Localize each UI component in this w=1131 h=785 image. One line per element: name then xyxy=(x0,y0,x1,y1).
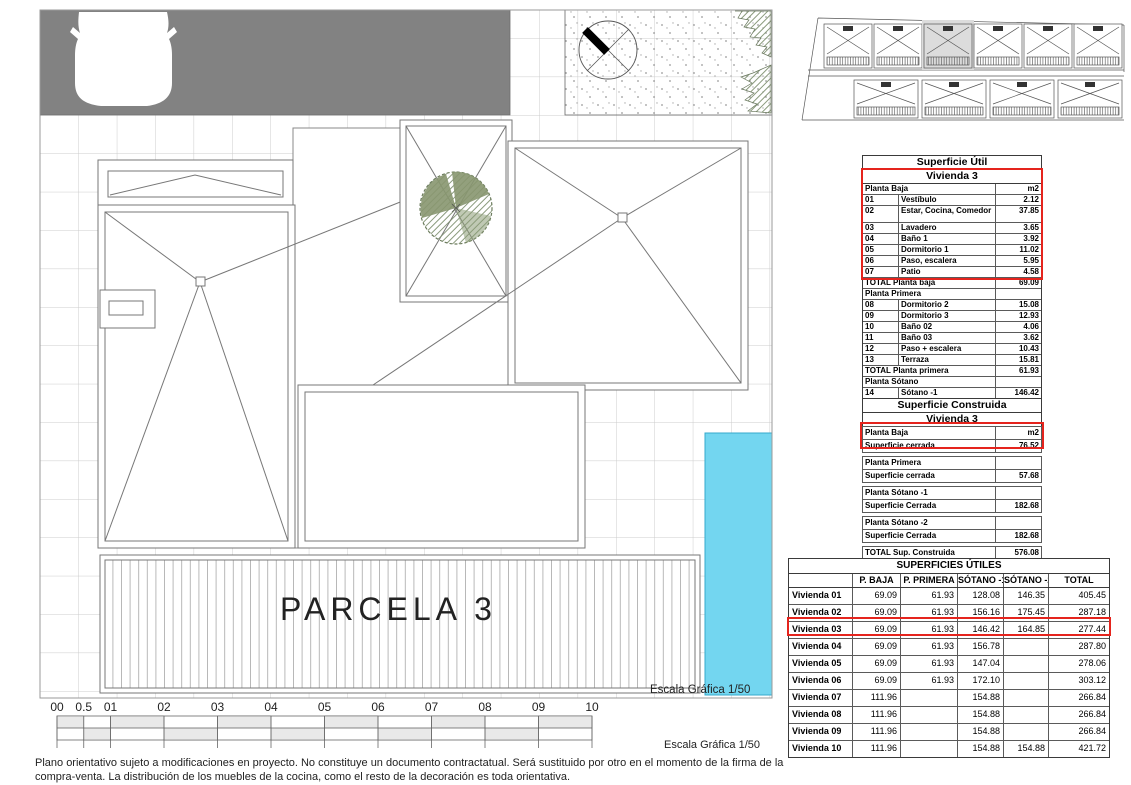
table-row: 08Dormitorio 215.08 xyxy=(863,300,1041,311)
svg-text:10: 10 xyxy=(585,700,599,714)
table-superficies-utiles: SUPERFICIES ÚTILES P. BAJAP. PRIMERASÓTA… xyxy=(788,558,1110,758)
table-row: Planta Sótano xyxy=(863,377,1041,388)
table-body: Planta Bajam2Superficie cerrada76.52Plan… xyxy=(862,426,1042,560)
table-row: 05Dormitorio 111.02 xyxy=(863,245,1041,256)
svg-text:08: 08 xyxy=(478,700,492,714)
svg-text:0.5: 0.5 xyxy=(75,700,92,714)
table-row: Superficie cerrada76.52 xyxy=(862,439,1042,453)
pool xyxy=(705,433,772,695)
table-row: Vivienda 10111.96154.88154.88421.72 xyxy=(789,741,1109,757)
table-row: Planta Primera xyxy=(862,456,1042,470)
table-row: Superficie Cerrada182.68 xyxy=(862,499,1042,513)
scale-caption-outer: Escala Gráfica 1/50 xyxy=(664,739,760,751)
key-plan-thumbnail xyxy=(798,12,1128,124)
table-column-headers: P. BAJAP. PRIMERASÓTANO -1SÓTANO -2TOTAL xyxy=(789,574,1109,588)
table-row: Planta Sótano -1 xyxy=(862,486,1042,500)
svg-text:00: 00 xyxy=(50,700,64,714)
car-icon xyxy=(70,12,177,106)
deck: PARCELA 3 xyxy=(100,555,700,693)
table-row: Planta Primera xyxy=(863,289,1041,300)
table-row: Vivienda 0669.0961.93172.10303.12 xyxy=(789,673,1109,690)
table-row: Planta Sótano -2 xyxy=(862,516,1042,530)
svg-text:05: 05 xyxy=(318,700,332,714)
table-row: 03Lavadero3.65 xyxy=(863,223,1041,234)
table-row: Vivienda 0469.0961.93156.78287.80 xyxy=(789,639,1109,656)
graphic-scale-bar: 000.501020304050607080910 xyxy=(50,700,599,748)
table-subtitle: Vivienda 3 xyxy=(863,413,1041,427)
parcel-label: PARCELA 3 xyxy=(280,591,497,627)
table-row: Superficie Cerrada182.68 xyxy=(862,529,1042,543)
table-superficie-util: Superficie Útil Vivienda 3 Planta Bajam2… xyxy=(862,155,1042,421)
table-row: 13Terraza15.81 xyxy=(863,355,1041,366)
table-row: 11Baño 033.62 xyxy=(863,333,1041,344)
svg-text:09: 09 xyxy=(532,700,546,714)
table-title: Superficie Construida xyxy=(863,399,1041,413)
gravel-area xyxy=(565,10,772,115)
table-superficie-construida: Superficie Construida Vivienda 3 Planta … xyxy=(862,398,1042,560)
svg-text:03: 03 xyxy=(211,700,225,714)
table-row: 01Vestíbulo2.12 xyxy=(863,195,1041,206)
table-header: Superficie Construida Vivienda 3 xyxy=(862,398,1042,427)
road xyxy=(40,10,510,115)
scale-caption-inner: Escala Gráfica 1/50 xyxy=(650,684,750,696)
svg-text:01: 01 xyxy=(104,700,118,714)
plan-sheet: PARCELA 3 Escala Gráfica 1/50 000.501020… xyxy=(0,0,1131,785)
svg-text:02: 02 xyxy=(157,700,171,714)
table-title: SUPERFICIES ÚTILES xyxy=(789,559,1109,574)
table-row: Vivienda 0369.0961.93146.42164.85277.44 xyxy=(789,622,1109,639)
table-row: 06Paso, escalera5.95 xyxy=(863,256,1041,267)
site-plan-drawing: PARCELA 3 Escala Gráfica 1/50 000.501020… xyxy=(35,5,775,755)
table-title: Superficie Útil xyxy=(863,156,1041,170)
svg-text:04: 04 xyxy=(264,700,278,714)
table-row: Planta Bajam2 xyxy=(862,426,1042,440)
table-row: 04Baño 13.92 xyxy=(863,234,1041,245)
table-body: Planta Bajam201Vestíbulo2.1202Estar, Coc… xyxy=(863,184,1041,420)
svg-text:07: 07 xyxy=(425,700,439,714)
table-row: 02Estar, Cocina, Comedor37.85 xyxy=(863,206,1041,223)
table-row: Vivienda 08111.96154.88266.84 xyxy=(789,707,1109,724)
table-row: Vivienda 09111.96154.88266.84 xyxy=(789,724,1109,741)
table-subtitle: Vivienda 3 xyxy=(863,170,1041,184)
table-row: TOTAL Planta primera61.93 xyxy=(863,366,1041,377)
table-row: 10Baño 024.06 xyxy=(863,322,1041,333)
table-row: Vivienda 0269.0961.93156.16175.45287.18 xyxy=(789,605,1109,622)
table-row: Vivienda 0169.0961.93128.08146.35405.45 xyxy=(789,588,1109,605)
table-row: Vivienda 07111.96154.88266.84 xyxy=(789,690,1109,707)
tree-icon xyxy=(420,172,492,244)
table-row: Planta Bajam2 xyxy=(863,184,1041,195)
disclaimer-text: Plano orientativo sujeto a modificacione… xyxy=(35,757,787,785)
table-row: TOTAL Planta baja69.09 xyxy=(863,278,1041,289)
table-row: 09Dormitorio 312.93 xyxy=(863,311,1041,322)
table-body: Vivienda 0169.0961.93128.08146.35405.45V… xyxy=(789,588,1109,757)
table-row: Vivienda 0569.0961.93147.04278.06 xyxy=(789,656,1109,673)
table-row: 07Patio4.58 xyxy=(863,267,1041,278)
svg-text:06: 06 xyxy=(371,700,385,714)
table-row: Superficie cerrada57.68 xyxy=(862,469,1042,483)
table-row: 12Paso + escalera10.43 xyxy=(863,344,1041,355)
